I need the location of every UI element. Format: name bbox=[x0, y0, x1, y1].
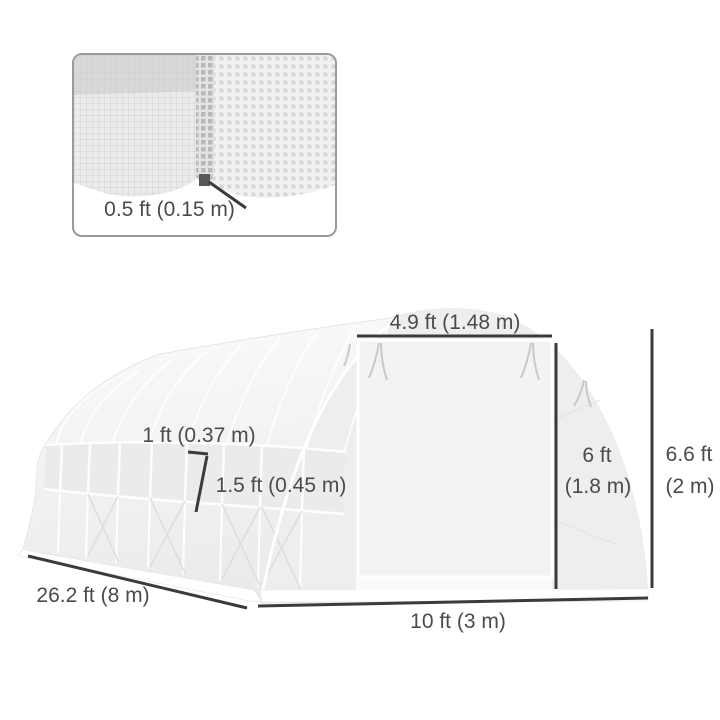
label-total-height-m: (2 m) bbox=[666, 475, 715, 498]
label-door-height-m: (1.8 m) bbox=[565, 475, 632, 498]
mesh-panel-right bbox=[206, 55, 335, 198]
label-door-height-ft: 6 ft bbox=[582, 444, 611, 467]
label-window-height: 1.5 ft (0.45 m) bbox=[216, 474, 347, 497]
dim-line-window-width bbox=[188, 452, 208, 454]
label-total-height-ft: 6.6 ft bbox=[666, 443, 713, 466]
detail-inset: 0.5 ft (0.15 m) bbox=[72, 53, 337, 237]
stake-height-label: 0.5 ft (0.15 m) bbox=[92, 198, 247, 222]
label-length: 26.2 ft (8 m) bbox=[36, 584, 149, 607]
stake-marker bbox=[199, 174, 210, 186]
label-width: 10 ft (3 m) bbox=[410, 610, 506, 633]
label-door-width: 4.9 ft (1.48 m) bbox=[390, 311, 521, 334]
mesh-seam bbox=[196, 55, 214, 186]
product-dimensions-image: 4.9 ft (1.48 m) 1 ft (0.37 m) 1.5 ft (0.… bbox=[0, 0, 720, 720]
mesh-panel-left bbox=[74, 55, 200, 197]
label-window-width: 1 ft (0.37 m) bbox=[142, 424, 255, 447]
